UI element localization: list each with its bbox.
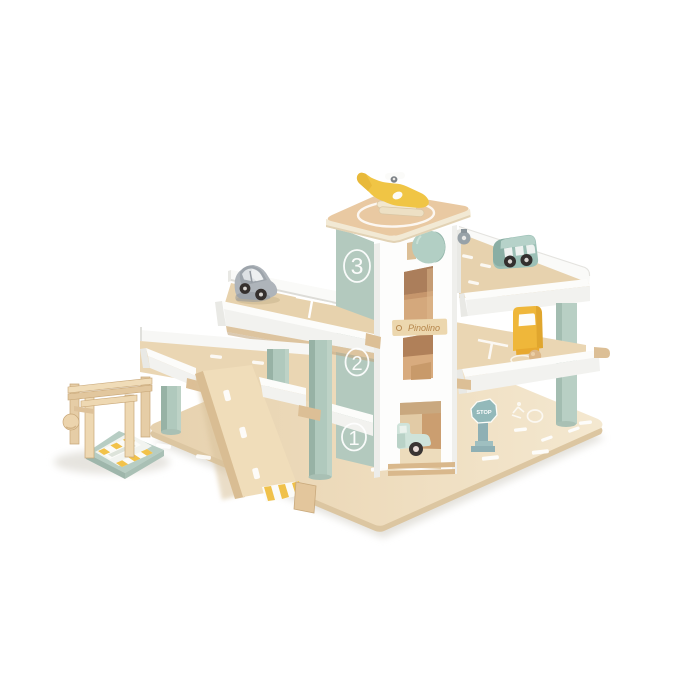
svg-text:1: 1 — [348, 428, 359, 450]
svg-text:Pinolino: Pinolino — [408, 323, 440, 333]
svg-text:3: 3 — [351, 253, 364, 279]
svg-text:2: 2 — [351, 353, 362, 375]
svg-text:STOP: STOP — [476, 410, 491, 416]
